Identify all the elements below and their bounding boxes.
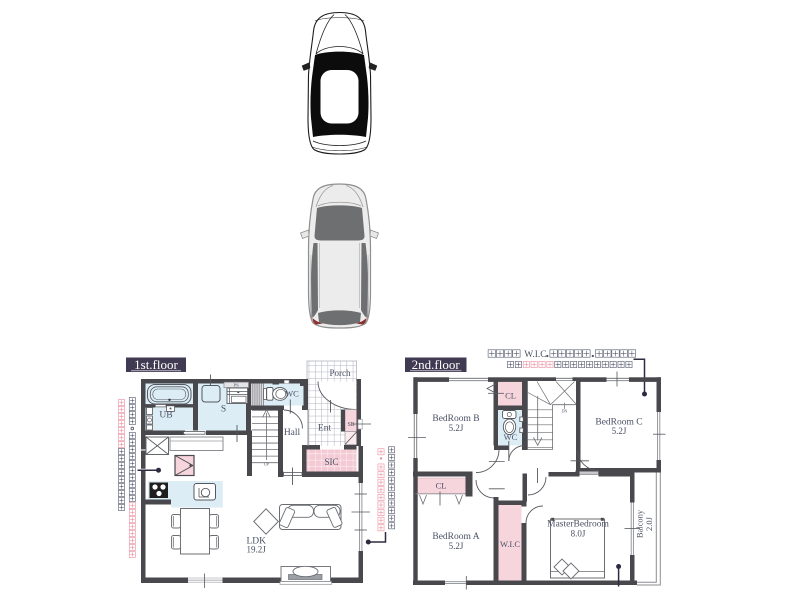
svg-text:SB: SB bbox=[347, 422, 354, 428]
svg-text:CL: CL bbox=[436, 481, 447, 491]
svg-text:W.I.C: W.I.C bbox=[500, 539, 520, 549]
svg-text:UP: UP bbox=[264, 462, 270, 467]
svg-text:5.2J: 5.2J bbox=[449, 423, 464, 433]
svg-text:Ent: Ent bbox=[318, 424, 332, 434]
svg-text:1st.floor: 1st.floor bbox=[134, 357, 178, 372]
svg-text:Hall: Hall bbox=[284, 428, 301, 438]
svg-text:5.2J: 5.2J bbox=[449, 541, 464, 551]
svg-text:S: S bbox=[221, 405, 226, 415]
svg-text:19.2J: 19.2J bbox=[247, 545, 267, 555]
svg-text:CL: CL bbox=[505, 391, 516, 401]
svg-text:UB: UB bbox=[159, 411, 172, 421]
svg-text:WC: WC bbox=[285, 389, 299, 399]
svg-text:2nd.floor: 2nd.floor bbox=[412, 357, 461, 372]
svg-text:WC: WC bbox=[504, 432, 518, 442]
svg-text:Balcony: Balcony bbox=[635, 509, 645, 538]
svg-text:Porch: Porch bbox=[330, 368, 351, 378]
svg-text:PS: PS bbox=[234, 383, 240, 388]
svg-text:DN: DN bbox=[562, 409, 568, 413]
svg-text:W.I.C: W.I.C bbox=[524, 350, 546, 360]
svg-text:2.0J: 2.0J bbox=[644, 516, 654, 531]
svg-text:5.2J: 5.2J bbox=[612, 426, 627, 436]
svg-text:8.0J: 8.0J bbox=[571, 529, 586, 539]
svg-text:SIC: SIC bbox=[324, 457, 338, 467]
